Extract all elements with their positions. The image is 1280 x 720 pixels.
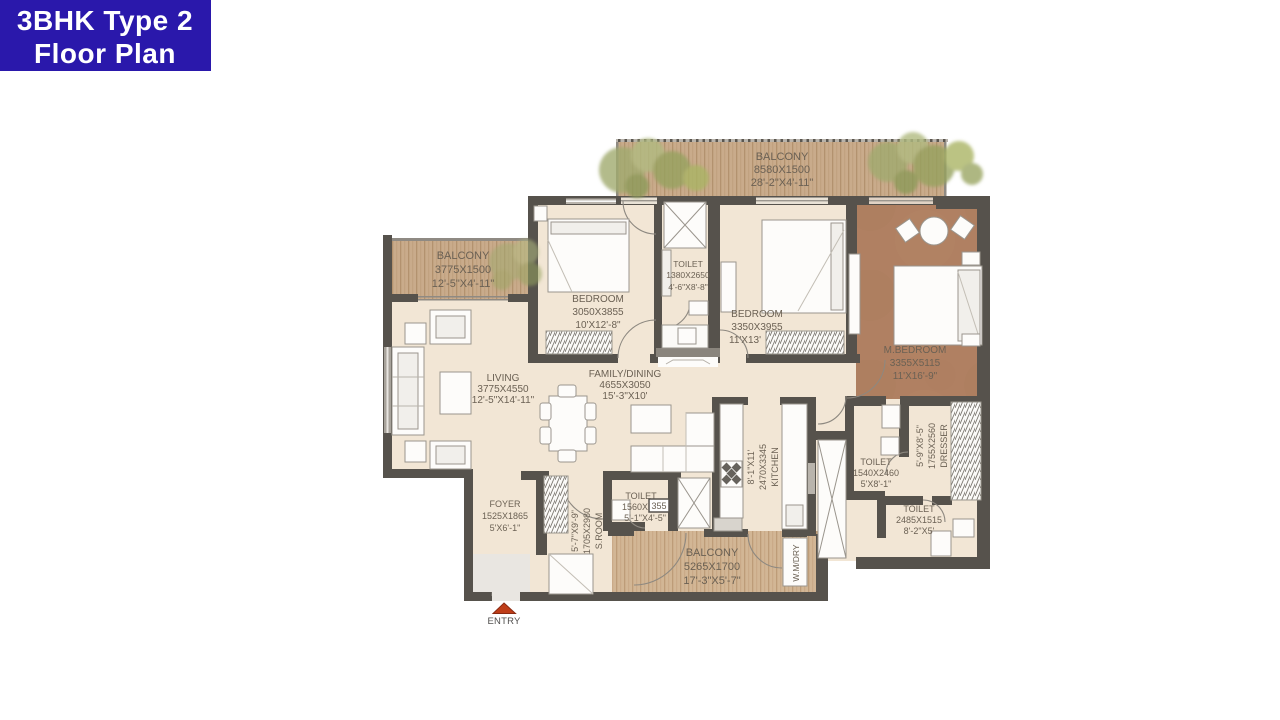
svg-text:12'-5"X4'-11": 12'-5"X4'-11" bbox=[432, 278, 495, 290]
svg-text:12'-5"X14'-11": 12'-5"X14'-11" bbox=[472, 395, 535, 406]
svg-text:ENTRY: ENTRY bbox=[487, 616, 520, 627]
svg-text:M.BEDROOM: M.BEDROOM bbox=[884, 345, 947, 356]
svg-text:2485X1515: 2485X1515 bbox=[896, 515, 942, 525]
svg-text:5'X8'-1": 5'X8'-1" bbox=[861, 479, 892, 489]
svg-text:FOYER: FOYER bbox=[489, 499, 521, 509]
svg-text:4'-6"X8'-8": 4'-6"X8'-8" bbox=[668, 282, 708, 292]
svg-text:3775X4550: 3775X4550 bbox=[477, 384, 529, 395]
svg-text:5265X1700: 5265X1700 bbox=[684, 561, 740, 573]
svg-text:S.ROOM: S.ROOM bbox=[594, 513, 604, 550]
svg-text:W.M/DRY: W.M/DRY bbox=[791, 544, 801, 581]
svg-text:1380X2650: 1380X2650 bbox=[666, 270, 710, 280]
svg-text:Floor Plan: Floor Plan bbox=[34, 38, 176, 69]
svg-text:BALCONY: BALCONY bbox=[756, 151, 809, 163]
svg-text:3355X5115: 3355X5115 bbox=[890, 358, 941, 369]
svg-text:4655X3050: 4655X3050 bbox=[599, 380, 651, 391]
svg-text:1755X2560: 1755X2560 bbox=[927, 423, 937, 469]
svg-text:15'-3"X10': 15'-3"X10' bbox=[602, 391, 647, 402]
svg-text:5'X6'-1": 5'X6'-1" bbox=[490, 523, 521, 533]
svg-text:DRESSER: DRESSER bbox=[939, 424, 949, 468]
svg-text:8580X1500: 8580X1500 bbox=[754, 164, 810, 176]
svg-text:KITCHEN: KITCHEN bbox=[770, 447, 780, 487]
svg-text:TOILET: TOILET bbox=[903, 504, 935, 514]
svg-text:TOILET: TOILET bbox=[673, 259, 703, 269]
svg-text:11'X13': 11'X13' bbox=[729, 335, 761, 346]
svg-text:1525X1865: 1525X1865 bbox=[482, 511, 528, 521]
svg-text:5'-7"X9'-9": 5'-7"X9'-9" bbox=[570, 510, 580, 552]
svg-text:BEDROOM: BEDROOM bbox=[572, 294, 624, 305]
svg-text:355: 355 bbox=[651, 501, 666, 511]
svg-text:5'-9"X8'-5": 5'-9"X8'-5" bbox=[915, 425, 925, 467]
svg-text:5'-1"X4'-5": 5'-1"X4'-5" bbox=[624, 513, 666, 523]
svg-text:BEDROOM: BEDROOM bbox=[731, 309, 783, 320]
svg-text:3775X1500: 3775X1500 bbox=[435, 264, 491, 276]
svg-text:LIVING: LIVING bbox=[487, 373, 520, 384]
svg-text:1705X2980: 1705X2980 bbox=[582, 508, 592, 554]
svg-text:11'X16'-9": 11'X16'-9" bbox=[893, 371, 938, 382]
svg-text:10'X12'-8": 10'X12'-8" bbox=[575, 320, 621, 331]
svg-text:17'-3"X5'-7": 17'-3"X5'-7" bbox=[683, 575, 740, 587]
svg-text:1540X2460: 1540X2460 bbox=[853, 468, 899, 478]
svg-text:1560X: 1560X bbox=[622, 502, 648, 512]
svg-text:3BHK Type 2: 3BHK Type 2 bbox=[17, 5, 193, 36]
svg-text:FAMILY/DINING: FAMILY/DINING bbox=[589, 369, 662, 380]
svg-text:3350X3955: 3350X3955 bbox=[731, 322, 783, 333]
svg-text:BALCONY: BALCONY bbox=[437, 250, 490, 262]
svg-text:3050X3855: 3050X3855 bbox=[572, 307, 624, 318]
svg-text:8'-2"X5': 8'-2"X5' bbox=[904, 526, 935, 536]
svg-text:2470X3345: 2470X3345 bbox=[758, 444, 768, 490]
svg-text:TOILET: TOILET bbox=[860, 457, 892, 467]
svg-text:BALCONY: BALCONY bbox=[686, 547, 739, 559]
svg-text:28'-2"X4'-11": 28'-2"X4'-11" bbox=[751, 177, 814, 189]
svg-text:8'-1"X11': 8'-1"X11' bbox=[746, 449, 756, 484]
